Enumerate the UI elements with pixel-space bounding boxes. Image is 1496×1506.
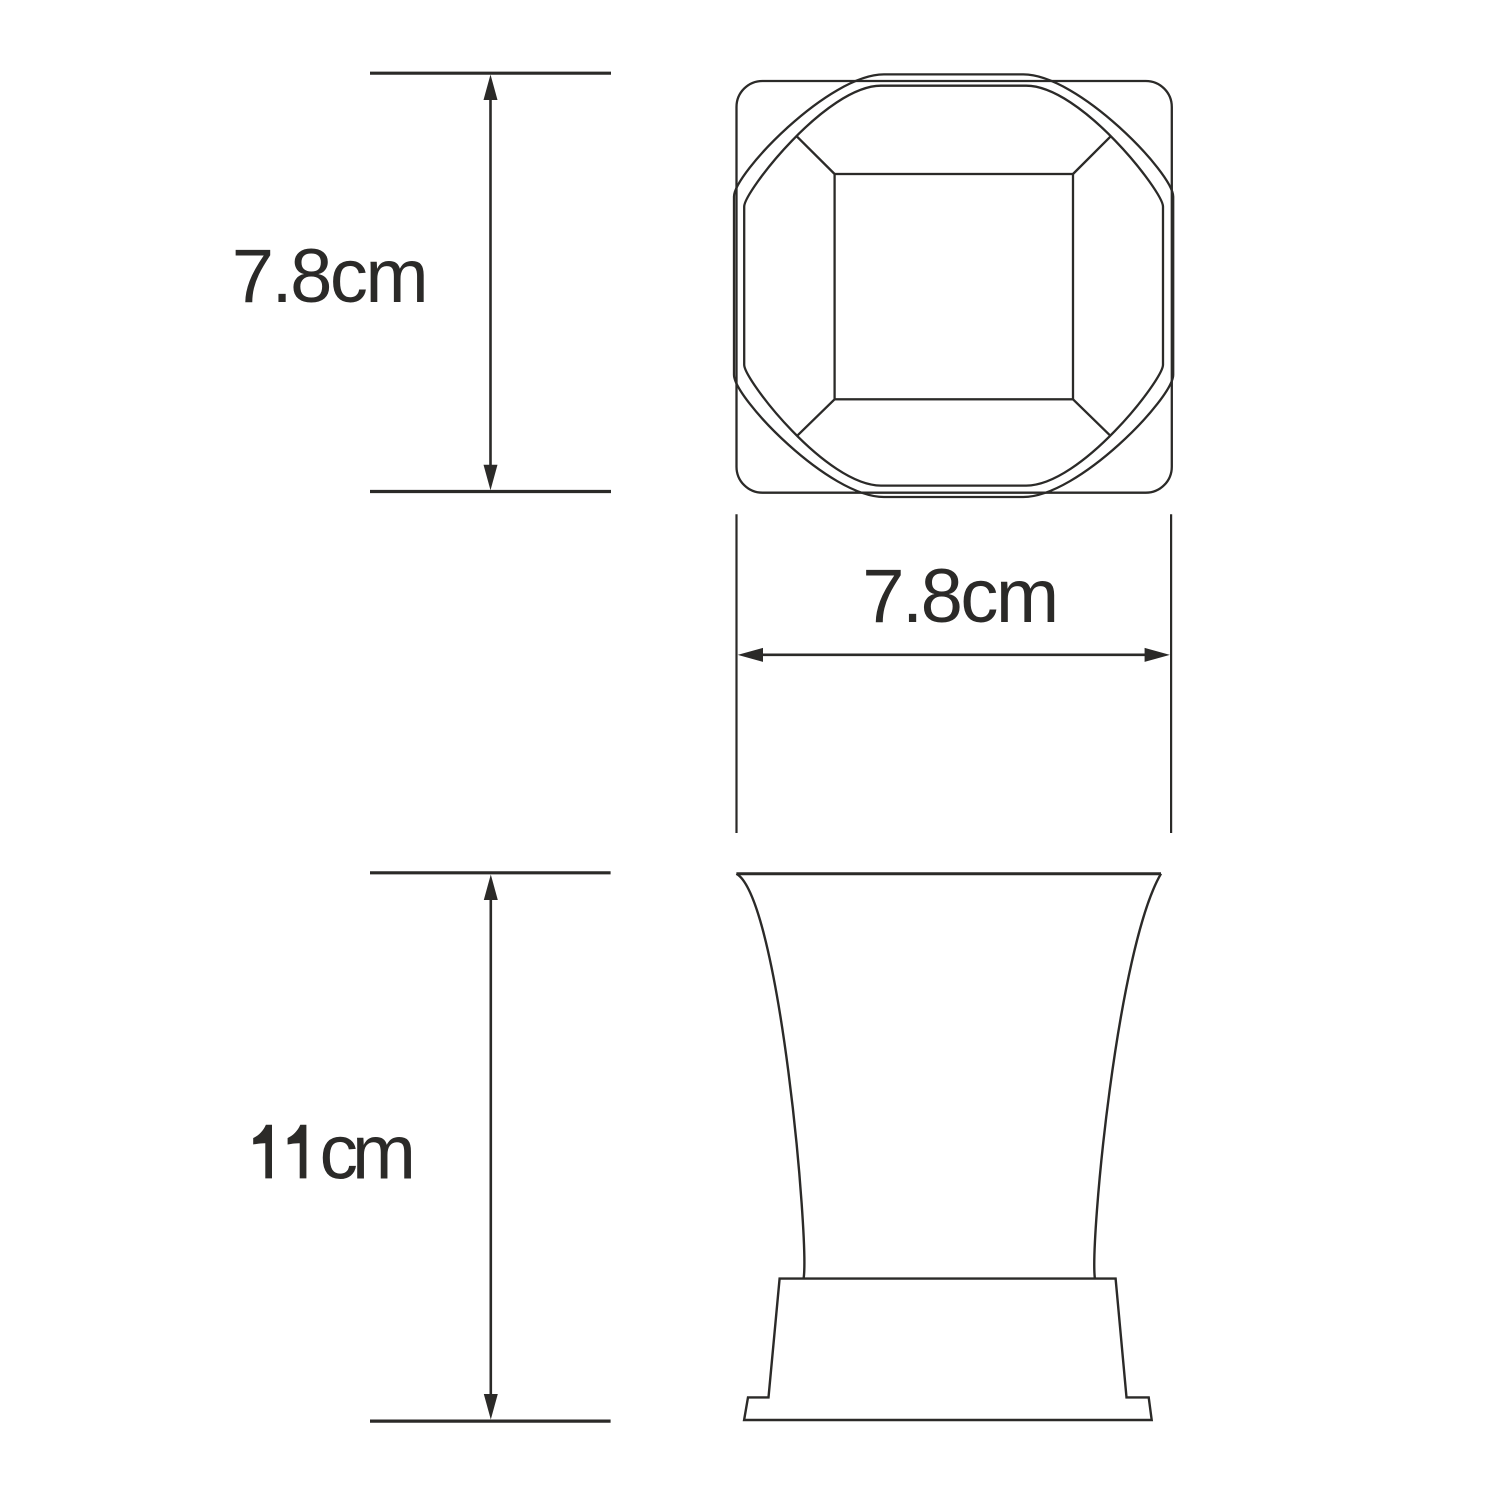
svg-text:7.8cm: 7.8cm — [232, 234, 426, 319]
svg-text:7.8cm: 7.8cm — [862, 554, 1056, 639]
svg-text:cm: cm — [320, 1109, 412, 1195]
